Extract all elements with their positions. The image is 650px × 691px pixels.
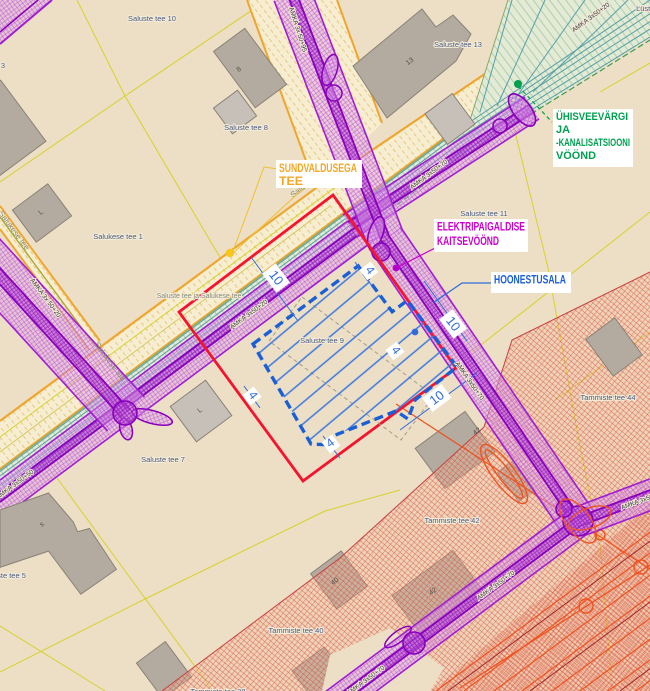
svg-text:TEE: TEE bbox=[279, 174, 303, 188]
svg-text:ÜHISVEEVÄRGI: ÜHISVEEVÄRGI bbox=[556, 110, 628, 123]
svg-text:Tammiste tee 42: Tammiste tee 42 bbox=[424, 516, 479, 525]
svg-text:Saluste tee 8: Saluste tee 8 bbox=[224, 123, 268, 132]
svg-text:SUNDVALDUSEGA: SUNDVALDUSEGA bbox=[279, 161, 357, 175]
svg-text:KAITSEVÖÖND: KAITSEVÖÖND bbox=[437, 235, 499, 248]
svg-text:-KANALISATSIOONI: -KANALISATSIOONI bbox=[556, 137, 630, 149]
svg-text:3: 3 bbox=[1, 61, 5, 70]
svg-text:JA: JA bbox=[556, 124, 570, 136]
svg-text:Saluste tee 9: Saluste tee 9 bbox=[300, 336, 344, 345]
svg-text:Salukese tee 1: Salukese tee 1 bbox=[93, 232, 143, 241]
svg-text:Saluste tee 11: Saluste tee 11 bbox=[460, 209, 507, 218]
svg-text:Tammiste tee 38: Tammiste tee 38 bbox=[190, 687, 245, 691]
svg-text:Tammiste tee 40: Tammiste tee 40 bbox=[268, 626, 323, 635]
svg-text:Saluste tee 10: Saluste tee 10 bbox=[128, 14, 176, 23]
svg-text:Saluste tee ja Salukese tee: Saluste tee ja Salukese tee bbox=[157, 293, 242, 300]
svg-text:Saluste tee 7: Saluste tee 7 bbox=[141, 455, 185, 464]
svg-text:Saluste tee 5: Saluste tee 5 bbox=[0, 571, 26, 580]
svg-text:Lüsti: Lüsti bbox=[636, 4, 650, 13]
svg-text:ELEKTRIPAIGALDISE: ELEKTRIPAIGALDISE bbox=[437, 222, 525, 234]
svg-text:VÖÖND: VÖÖND bbox=[556, 149, 596, 162]
svg-text:Tammiste tee 44: Tammiste tee 44 bbox=[580, 393, 635, 402]
svg-text:Saluste tee 13: Saluste tee 13 bbox=[434, 40, 482, 49]
svg-text:HOONESTUSALA: HOONESTUSALA bbox=[494, 275, 566, 287]
